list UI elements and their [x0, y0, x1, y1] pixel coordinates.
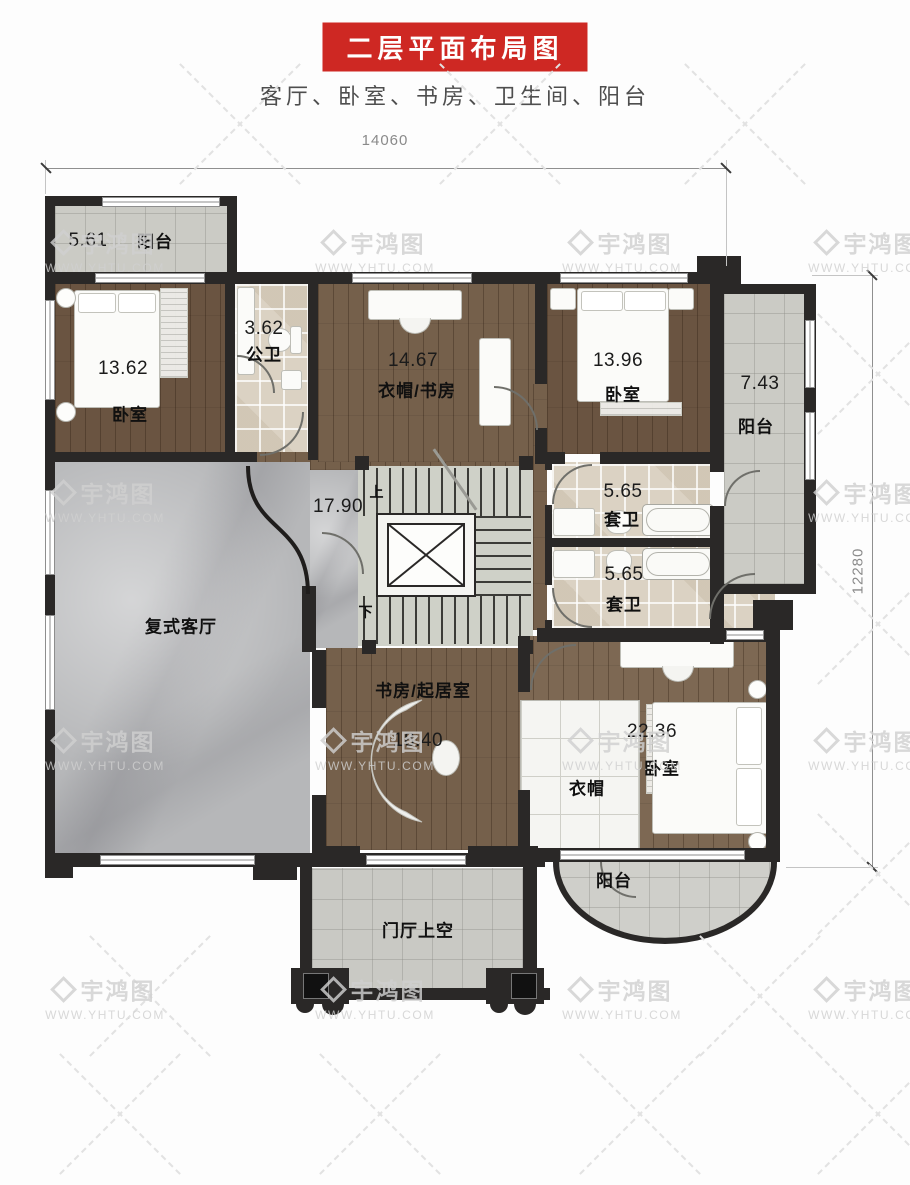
wall-segment: [227, 196, 237, 282]
wall-segment: [766, 628, 780, 862]
brand-diamond-icon: [814, 479, 841, 506]
watermark: 宇鸿图WWW.YHTU.COM: [808, 723, 910, 773]
porch-column-cap: [511, 973, 537, 999]
dimension-line-top: [45, 168, 726, 169]
window: [45, 300, 55, 400]
column-foot: [296, 1004, 314, 1013]
watermark: 宇鸿图WWW.YHTU.COM: [808, 225, 910, 275]
label-area: 5.65: [604, 481, 643, 503]
wall-segment: [545, 505, 552, 585]
wall-segment: [355, 456, 369, 470]
label-area: 22.36: [627, 721, 677, 743]
pillow: [118, 293, 156, 313]
wall-segment: [518, 636, 530, 692]
void-curved-rail: [240, 462, 320, 598]
window: [560, 273, 688, 283]
pillow: [736, 768, 762, 826]
wall-segment: [45, 452, 257, 462]
vanity: [553, 508, 595, 536]
room-balcony-bottom: [553, 860, 777, 944]
stair-flight-top: [363, 468, 531, 516]
label-area: 5.65: [605, 564, 644, 586]
pilaster: [753, 600, 793, 630]
label-area: 5.61: [69, 230, 108, 252]
label-room: 书房/起居室: [375, 677, 471, 702]
brand-diamond-icon: [814, 976, 841, 1003]
dimension-line-right: [872, 275, 873, 867]
label-area: 13.62: [98, 358, 148, 380]
page-title: 二层平面布局图: [322, 23, 587, 72]
toilet-tank: [290, 326, 302, 354]
pilaster: [468, 846, 538, 866]
window: [100, 855, 255, 865]
extension-line: [786, 867, 878, 868]
label-room: 衣帽/书房: [378, 377, 456, 402]
window: [95, 273, 205, 283]
label-room: 套卫: [604, 506, 640, 531]
watermark: 宇鸿图WWW.YHTU.COM: [315, 225, 435, 275]
floorplan-page: 二层平面布局图 客厅、卧室、书房、卫生间、阳台 14060 12280: [0, 0, 910, 1185]
stair-flight-bottom: [363, 596, 531, 644]
nightstand: [668, 288, 694, 310]
pillow: [736, 707, 762, 765]
stair-down-label: 下: [359, 602, 374, 622]
wall-segment: [312, 650, 326, 708]
wall-segment: [724, 284, 816, 294]
desk: [368, 290, 462, 320]
page-subtitle: 客厅、卧室、书房、卫生间、阳台: [260, 79, 650, 111]
label-area: 7.43: [741, 373, 780, 395]
wall-segment: [710, 272, 724, 472]
curved-desk: [368, 694, 440, 828]
window: [560, 850, 745, 860]
bathtub: [642, 504, 714, 536]
pilaster: [697, 256, 741, 284]
window: [366, 855, 466, 865]
room-balcony-right: [724, 294, 804, 584]
window: [102, 197, 220, 207]
bathtub: [642, 548, 714, 580]
dimension-right-value: 12280: [850, 548, 867, 595]
window: [45, 615, 55, 710]
watermark: 宇鸿图WWW.YHTU.COM: [808, 475, 910, 525]
label-room: 卧室: [644, 755, 680, 780]
extension-line: [812, 275, 878, 276]
dashed-pattern: [295, 1028, 465, 1185]
nightstand: [748, 680, 767, 699]
label-area: 17.90: [313, 496, 363, 518]
wall-segment: [710, 506, 724, 644]
nightstand: [550, 288, 576, 310]
label-room: 套卫: [606, 591, 642, 616]
pilaster: [45, 862, 73, 878]
label-area: 18.40: [393, 730, 443, 752]
window: [45, 490, 55, 575]
stair-up-label: 上: [370, 482, 385, 502]
nightstand: [56, 402, 76, 422]
label-room: 复式客厅: [145, 613, 217, 638]
watermark: 宇鸿图WWW.YHTU.COM: [45, 972, 165, 1022]
column-foot: [514, 1004, 536, 1015]
dashed-pattern: [793, 788, 910, 958]
brand-diamond-icon: [51, 976, 78, 1003]
nightstand: [56, 288, 76, 308]
label-area: 14.67: [388, 350, 438, 372]
label-room: 衣帽: [569, 775, 605, 800]
label-area: 13.96: [593, 350, 643, 372]
label-room: 阳台: [596, 867, 632, 892]
porch-column-cap: [303, 973, 329, 999]
vanity: [553, 550, 595, 578]
wall-segment: [545, 462, 552, 470]
watermark: 宇鸿图WWW.YHTU.COM: [808, 972, 910, 1022]
label-area: 3.62: [245, 318, 284, 340]
elevator-shaft: [376, 513, 476, 597]
extension-line: [726, 160, 727, 266]
label-room: 卧室: [112, 401, 148, 426]
dashed-pattern: [35, 1028, 205, 1185]
sink: [281, 370, 302, 390]
pillow: [78, 293, 116, 313]
stair-flight-right: [475, 516, 531, 596]
label-room: 阳台: [137, 228, 173, 253]
wall-segment: [519, 456, 533, 470]
wall-segment: [535, 284, 547, 384]
pillow: [581, 291, 623, 311]
brand-diamond-icon: [321, 229, 348, 256]
watermark: 宇鸿图WWW.YHTU.COM: [562, 225, 682, 275]
brand-diamond-icon: [568, 229, 595, 256]
dashed-pattern: [555, 1028, 725, 1185]
window: [352, 273, 472, 283]
wall-segment: [600, 452, 724, 464]
wall-segment: [545, 538, 724, 547]
label-room: 门厅上空: [382, 917, 454, 942]
pilaster: [318, 846, 360, 866]
rug: [160, 288, 188, 378]
wall-segment: [362, 640, 376, 654]
dashed-pattern: [155, 38, 325, 208]
dashed-pattern: [65, 910, 235, 1080]
wall-segment: [308, 284, 318, 460]
brand-diamond-icon: [568, 976, 595, 1003]
column-foot: [322, 1004, 344, 1015]
wall-segment: [545, 620, 552, 628]
brand-diamond-icon: [814, 229, 841, 256]
pilaster: [253, 862, 297, 880]
label-room: 卧室: [605, 381, 641, 406]
window: [805, 412, 815, 480]
label-room: 公卫: [246, 341, 282, 366]
brand-diamond-icon: [814, 727, 841, 754]
dashed-pattern: [793, 1028, 910, 1185]
wall-segment: [45, 196, 55, 282]
pillow: [624, 291, 666, 311]
watermark: 宇鸿图WWW.YHTU.COM: [562, 972, 682, 1022]
column-foot: [490, 1004, 508, 1013]
label-room: 阳台: [738, 413, 774, 438]
dimension-top-value: 14060: [362, 132, 409, 149]
wall-segment: [518, 790, 530, 850]
dashed-pattern: [660, 38, 830, 208]
window: [805, 320, 815, 388]
window: [726, 630, 764, 640]
wall-segment: [225, 284, 235, 460]
